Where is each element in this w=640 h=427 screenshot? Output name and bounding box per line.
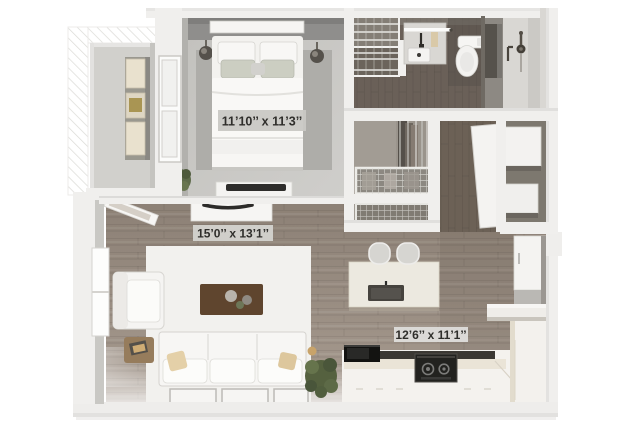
svg-text:12’6’’ x 11’1’’: 12’6’’ x 11’1’’ bbox=[395, 328, 466, 342]
svg-text:11’10’’ x 11’3’’: 11’10’’ x 11’3’’ bbox=[222, 115, 302, 129]
svg-text:15’0’’ x 13’1’’: 15’0’’ x 13’1’’ bbox=[197, 227, 269, 241]
